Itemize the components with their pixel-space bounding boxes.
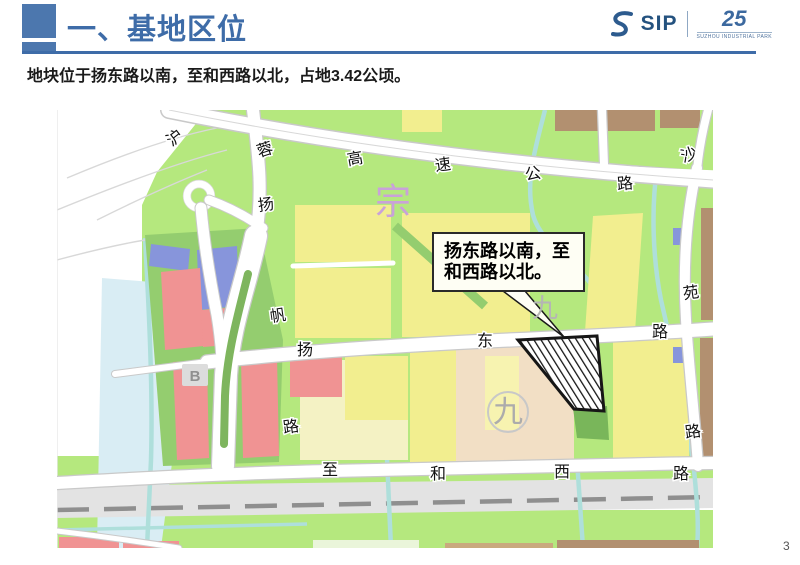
road-label-zhihexi-2: 和	[430, 465, 446, 483]
map-image: B 宗 九 九 沪 蓉 高 速 公 路 沙 扬	[57, 110, 713, 548]
road-label-yangdong-3: 路	[652, 323, 668, 341]
road-label-highway-6: 路	[616, 174, 634, 193]
header-divider	[22, 51, 756, 54]
road-label-zhihexi-4: 路	[673, 465, 689, 483]
callout-line-1: 扬东路以南，至	[444, 241, 579, 262]
block-b-marker: B	[182, 364, 208, 386]
site-callout: 扬东路以南，至 和西路以北。	[432, 232, 585, 292]
anniversary-25: 25	[722, 8, 746, 30]
slide: 一、基地区位 SIP 25 SUZHOU INDUSTRIAL PARK 地块位…	[0, 0, 800, 565]
title-accent-bar	[22, 42, 56, 51]
page-title: 一、基地区位	[67, 6, 247, 48]
road-label-highway-5: 公	[524, 165, 543, 185]
road-label-yuan-2: 路	[684, 422, 702, 442]
road-label-highway-4: 速	[434, 155, 452, 175]
logo-divider	[687, 11, 688, 37]
callout-line-2: 和西路以北。	[444, 262, 579, 283]
road-label-yuan-1: 苑	[682, 283, 700, 303]
sip-logo-text: SIP	[641, 12, 678, 36]
watermark-jiu-lower: 九	[493, 396, 523, 429]
road-label-yangdong-1: 扬	[297, 341, 313, 359]
road-label-zhihexi-1: 至	[322, 462, 338, 479]
slide-subtitle: 地块位于扬东路以南，至和西路以北，占地3.42公顷。	[27, 62, 410, 86]
road-label-yangfan-1: 扬	[257, 195, 275, 215]
anniversary-mark: 25 SUZHOU INDUSTRIAL PARK	[697, 8, 772, 40]
watermark-zong: 宗	[375, 181, 411, 222]
anniversary-caption: SUZHOU INDUSTRIAL PARK	[697, 32, 772, 40]
road-label-yangfan-3: 路	[282, 417, 300, 437]
block-b-label: B	[190, 368, 201, 385]
watermark-jiu-upper: 九	[532, 293, 558, 323]
page-number: 3	[783, 539, 790, 553]
road-label-zhihexi-3: 西	[554, 464, 570, 481]
location-map: B 宗 九 九 沪 蓉 高 速 公 路 沙 扬	[57, 110, 713, 548]
title-accent-square	[22, 4, 56, 38]
road-label-yangfan-2: 帆	[269, 306, 287, 326]
road-label-yangdong-2: 东	[477, 332, 493, 350]
sip-logo: SIP 25 SUZHOU INDUSTRIAL PARK	[607, 8, 772, 40]
sip-swirl-icon	[607, 9, 637, 39]
road-label-highway-3: 高	[346, 149, 365, 170]
